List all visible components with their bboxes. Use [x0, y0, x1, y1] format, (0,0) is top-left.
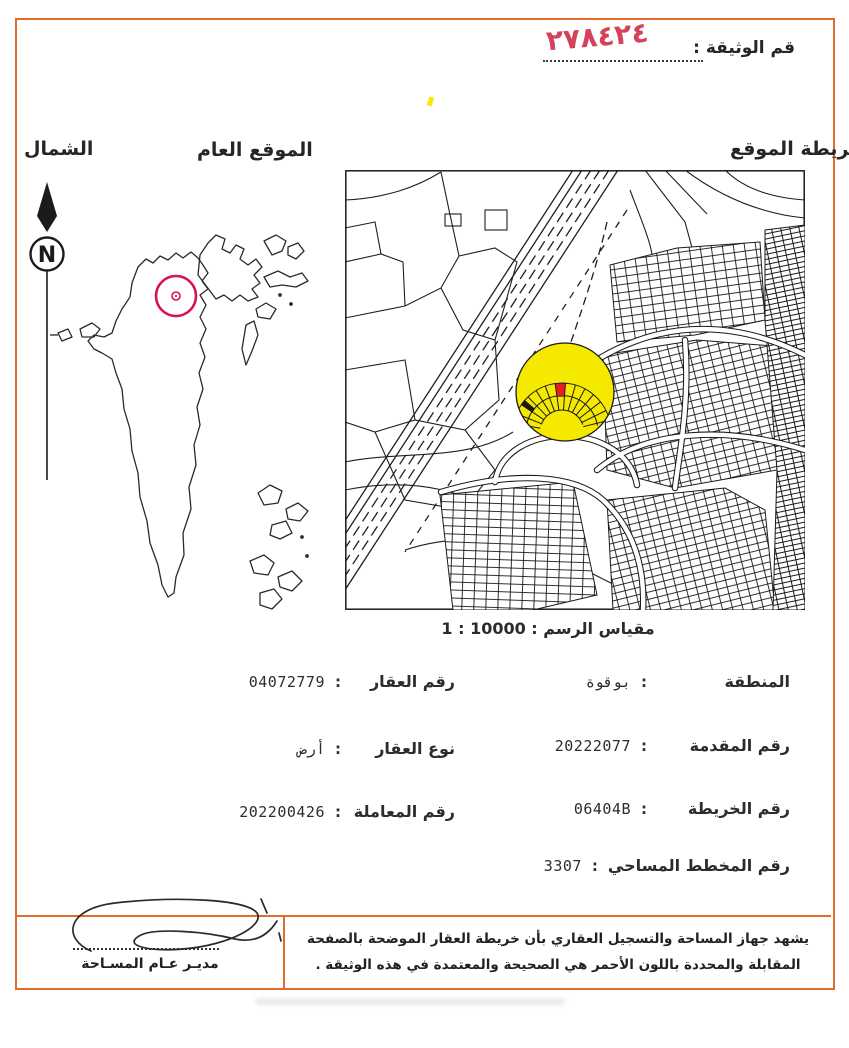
- subject-parcel-red: [555, 383, 565, 396]
- site-map: [345, 170, 805, 610]
- certification-line-1: يشهد جهاز المساحة والتسجيل العقاري بأن خ…: [300, 926, 816, 952]
- certification-line-2: المقابلة والمحددة باللون الأحمر هي الصحي…: [300, 952, 816, 978]
- field-value: بوقوة: [586, 673, 631, 691]
- field-separator: :: [335, 673, 341, 691]
- field-value: 04072779: [249, 673, 325, 691]
- field-value: 06404B: [574, 800, 631, 818]
- field-property-type: نوع العقار : أرض: [298, 739, 455, 758]
- scale-label: مقياس الرسم : 10000 : 1: [423, 619, 673, 638]
- bahrain-west-islets: [80, 323, 100, 337]
- field-value: 20222077: [555, 737, 631, 755]
- document-page: قم الوثيقة : ٢٧٨٤٢٤ الشمال الموقع العام …: [0, 0, 849, 1048]
- field-value: أرض: [298, 740, 325, 758]
- field-label: نوع العقار: [351, 739, 455, 758]
- field-label: رقم المقدمة: [657, 736, 790, 755]
- general-location-map: [50, 225, 320, 625]
- field-separator: :: [335, 803, 341, 821]
- bahrain-main-island: [88, 252, 208, 597]
- field-separator: :: [641, 737, 647, 755]
- field-value: 202200426: [239, 803, 325, 821]
- field-label: رقم الخريطة: [657, 799, 790, 818]
- field-label: رقم المخطط المساحي: [608, 856, 790, 875]
- field-application-number: رقم المقدمة : 20222077: [555, 736, 790, 755]
- field-transaction-number: رقم المعاملة : 202200426: [239, 802, 455, 821]
- header-general-location: الموقع العام: [197, 139, 313, 161]
- certification-text: يشهد جهاز المساحة والتسجيل العقاري بأن خ…: [300, 926, 816, 979]
- field-map-number: رقم الخريطة : 06404B: [574, 799, 790, 818]
- signature-title: مديـر عـام المسـاحة: [70, 956, 230, 972]
- field-separator: :: [641, 800, 647, 818]
- bahrain-ne-islands: [198, 235, 262, 301]
- field-separator: :: [335, 740, 341, 758]
- field-separator: :: [641, 673, 647, 691]
- bahrain-south-islets: [250, 485, 308, 609]
- field-property-number: رقم العقار : 04072779: [249, 672, 455, 691]
- field-area: المنطقة : بوقوة: [586, 672, 790, 691]
- header-site-map: خريطة الموقع: [730, 138, 849, 160]
- field-label: المنطقة: [657, 672, 790, 691]
- field-survey-plan-number: رقم المخطط المساحي : 3307: [544, 856, 790, 875]
- scan-smudge: [255, 998, 565, 1005]
- doc-number-label: قم الوثيقة :: [693, 38, 795, 58]
- field-label: رقم المعاملة: [351, 802, 455, 821]
- field-label: رقم العقار: [351, 672, 455, 691]
- field-separator: :: [592, 857, 598, 875]
- header-north: الشمال: [24, 138, 93, 160]
- field-value: 3307: [544, 857, 582, 875]
